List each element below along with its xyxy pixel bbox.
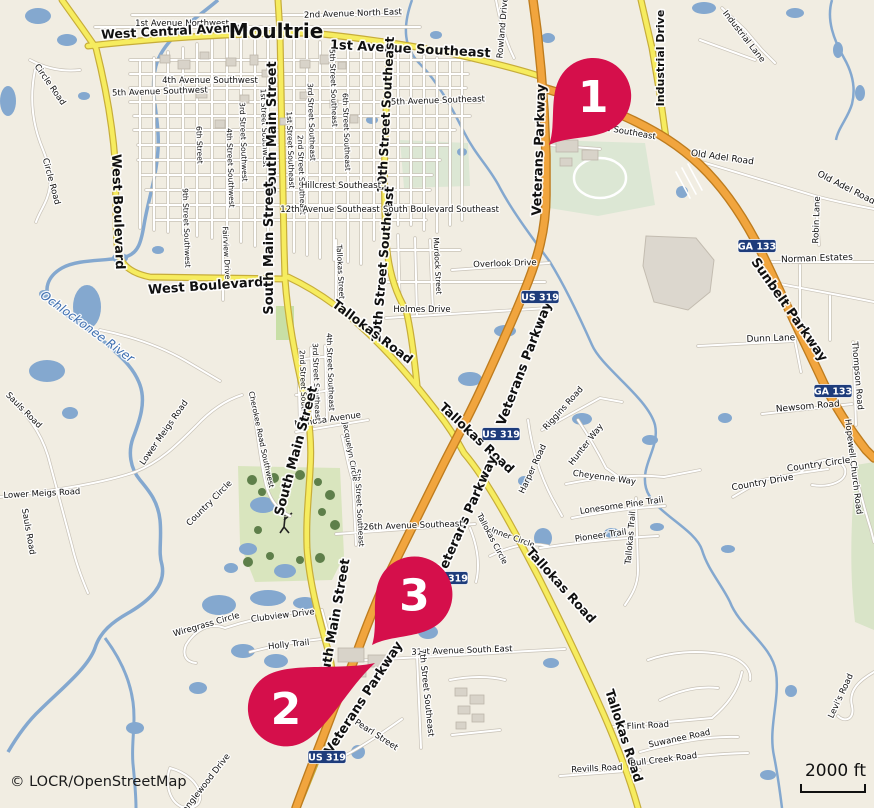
road-label: 4th Avenue Southwest bbox=[162, 76, 258, 86]
marker-number: 3 bbox=[399, 570, 430, 621]
svg-text:GA 133: GA 133 bbox=[814, 387, 852, 398]
road-label: Industrial Drive bbox=[654, 10, 667, 107]
map: 1st Avenue NorthwestWest Central AvenueM… bbox=[0, 0, 874, 808]
svg-text:GA 133: GA 133 bbox=[738, 242, 776, 253]
route-shield: US 319 bbox=[308, 751, 346, 764]
map-canvas: 1st Avenue NorthwestWest Central AvenueM… bbox=[0, 0, 874, 808]
road-label: South Main Street bbox=[262, 181, 277, 314]
road-label: Dunn Lane bbox=[746, 333, 795, 345]
scale-bar bbox=[800, 784, 866, 793]
route-shield: GA 133 bbox=[814, 385, 852, 398]
scale-label: 2000 ft bbox=[772, 762, 866, 780]
city-label: Moultrie bbox=[229, 19, 324, 43]
road-label: South Main Street bbox=[265, 61, 280, 194]
road-label: Robin Lane bbox=[811, 196, 823, 243]
attribution: © LOCR/OpenStreetMap bbox=[10, 774, 187, 790]
road-label: South Boulevard Southeast bbox=[383, 205, 500, 215]
svg-text:US 319: US 319 bbox=[308, 753, 346, 764]
road-label: Holmes Drive bbox=[393, 305, 450, 315]
road-label: Hillcrest Southeast bbox=[301, 181, 382, 191]
marker-number: 2 bbox=[271, 684, 302, 735]
route-shield: US 319 bbox=[521, 291, 559, 304]
route-shield: GA 133 bbox=[738, 240, 776, 253]
marker-number: 1 bbox=[578, 72, 609, 123]
svg-text:US 319: US 319 bbox=[521, 293, 559, 304]
svg-text:US 319: US 319 bbox=[482, 430, 520, 441]
route-shield: US 319 bbox=[482, 428, 520, 441]
road-label: 12th Avenue Southeast bbox=[280, 205, 380, 215]
road-label: 6th Street bbox=[194, 126, 204, 164]
scale-indicator: 2000 ft bbox=[772, 762, 866, 793]
